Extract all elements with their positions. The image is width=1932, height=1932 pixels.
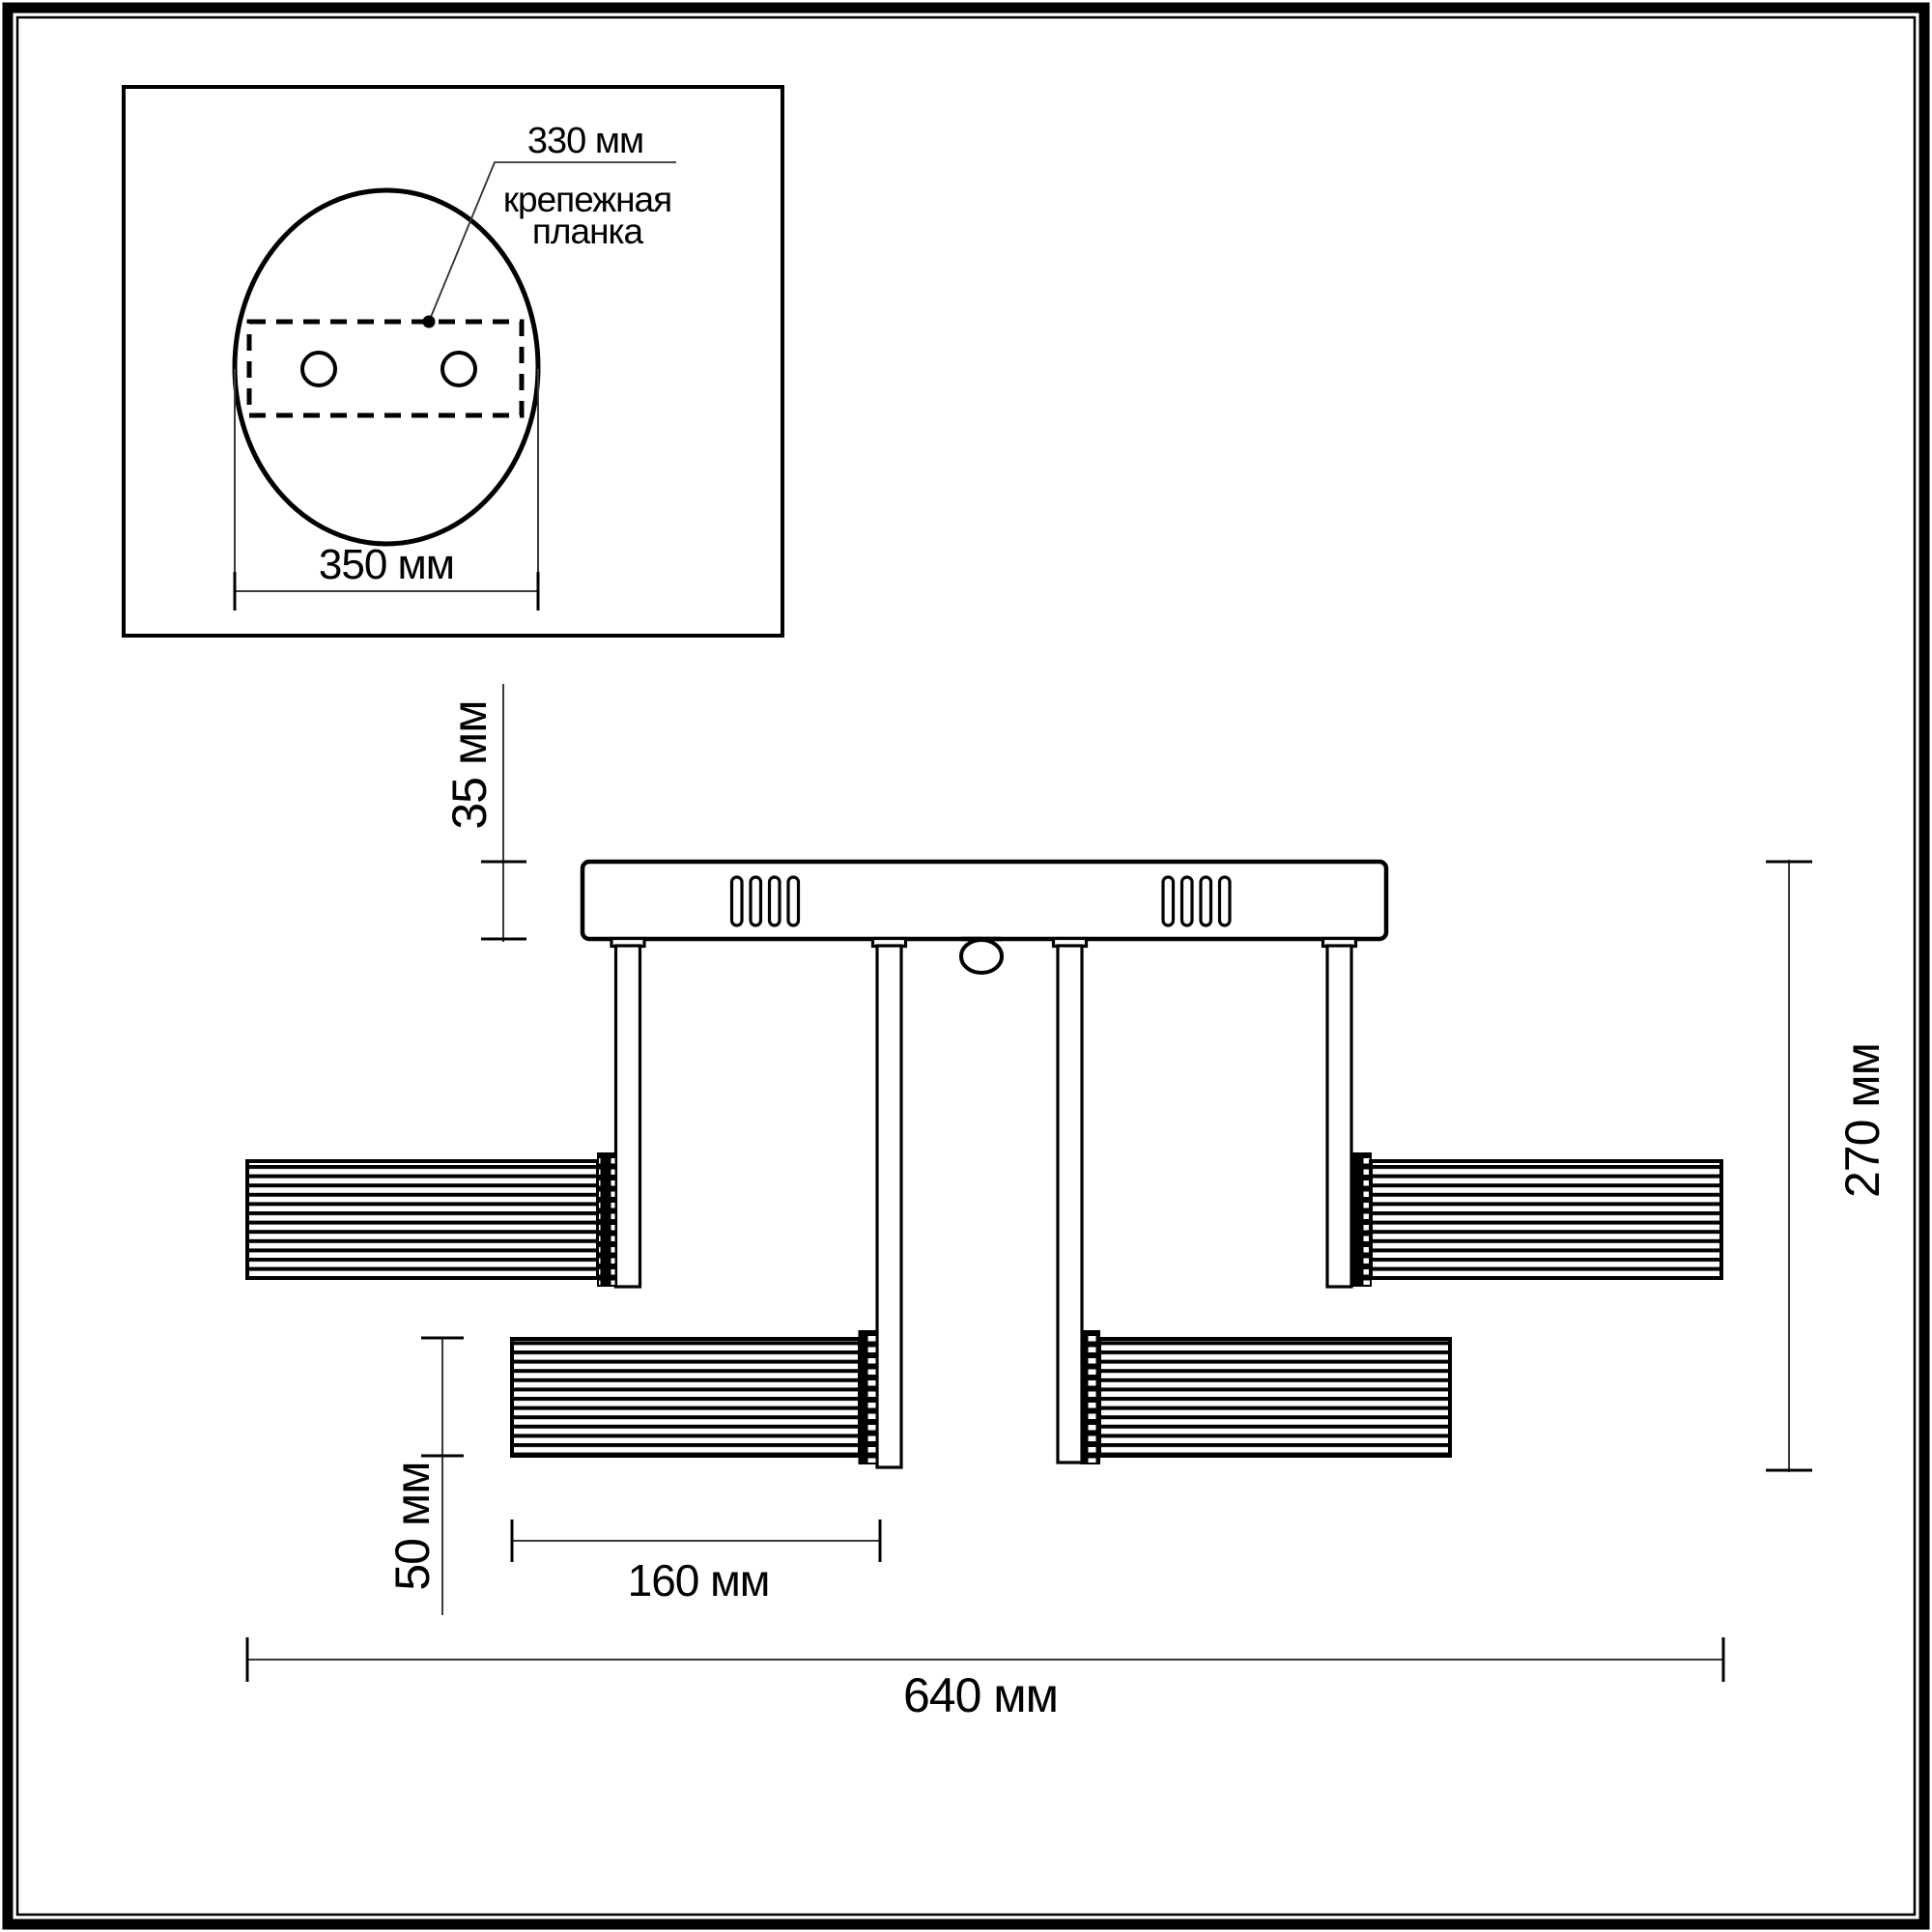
- inset-box: 330 мм крепежная планка 350 мм: [124, 87, 782, 636]
- shade-upper-right-body: [1371, 1161, 1721, 1278]
- vent-slot: [751, 877, 761, 925]
- shade-upper-right-collar: [1353, 1153, 1372, 1286]
- dim-fixture-height: 270 мм: [1766, 860, 1889, 1472]
- shade-upper-left-body: [247, 1161, 598, 1278]
- rod-1: [616, 946, 640, 1287]
- label-shade-diameter: 50 мм: [385, 1462, 440, 1590]
- shade-lower-left-body: [512, 1339, 860, 1456]
- shade-upper-left-collar: [598, 1153, 616, 1286]
- label-canopy-diameter: 350 мм: [319, 541, 454, 588]
- dim-canopy-height: 35 мм: [442, 684, 526, 942]
- shade-lower-right-body: [1099, 1339, 1450, 1456]
- rod-4: [1327, 946, 1351, 1287]
- vent-slot: [788, 877, 799, 925]
- vent-slot: [770, 877, 781, 925]
- dim-fixture-width: 640 мм: [247, 1637, 1723, 1722]
- shade-lower-left-collar: [860, 1331, 878, 1463]
- rod-2: [877, 946, 901, 1467]
- label-plate-width: 330 мм: [527, 121, 643, 161]
- vent-slot: [1182, 877, 1193, 925]
- canopy-bar: [582, 862, 1386, 939]
- shade-lower-right-collar: [1082, 1331, 1100, 1463]
- cable-knob: [961, 940, 1002, 973]
- label-fixture-width: 640 мм: [903, 1668, 1058, 1722]
- screw-hole-right: [442, 353, 475, 385]
- vent-slot: [1220, 877, 1231, 925]
- vent-slot: [1201, 877, 1211, 925]
- canopy-circle: [235, 190, 538, 544]
- shades: [247, 1153, 1721, 1463]
- fixture-elevation: [247, 862, 1721, 1467]
- dimensional-drawing: 330 мм крепежная планка 350 мм: [0, 0, 1932, 1932]
- leader-dot: [423, 316, 436, 328]
- rod-3: [1058, 946, 1082, 1463]
- vent-slot: [1163, 877, 1174, 925]
- screw-hole-left: [302, 353, 335, 385]
- mounting-plate-outline: [249, 322, 522, 415]
- dim-shade-diameter: 50 мм: [385, 1338, 464, 1615]
- label-shade-length: 160 мм: [628, 1555, 770, 1605]
- drawing-canvas: 330 мм крепежная планка 350 мм: [0, 0, 1932, 1932]
- label-plate-name-line2: планка: [532, 212, 644, 251]
- label-canopy-height: 35 мм: [442, 700, 497, 829]
- dim-shade-length: 160 мм: [512, 1520, 880, 1605]
- label-fixture-height: 270 мм: [1835, 1043, 1889, 1198]
- vent-slot: [732, 877, 743, 925]
